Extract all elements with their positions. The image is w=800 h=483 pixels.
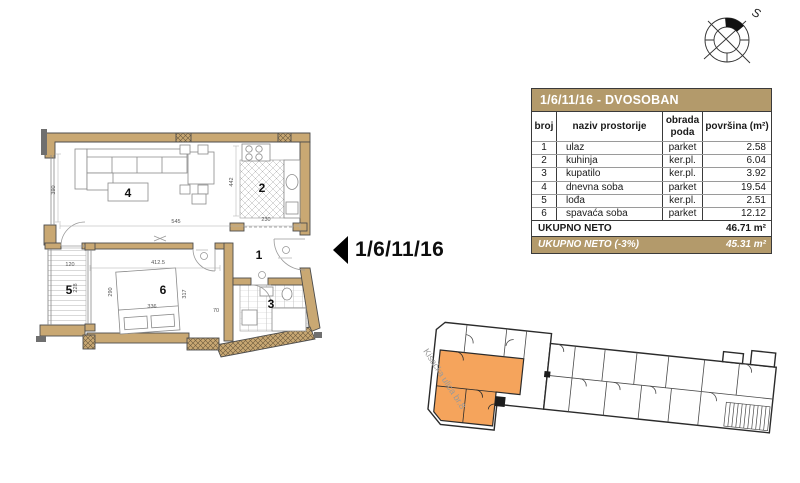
cell-naziv: dnevna soba <box>557 182 663 194</box>
table-row: 5 lođa ker.pl. 2.51 <box>532 194 771 207</box>
dining-table <box>188 152 214 184</box>
stairwell <box>724 402 770 430</box>
building-key-plan: Kisačka ulica br.8 <box>405 303 800 481</box>
dim-390: 390 <box>51 185 57 194</box>
room-number-5: 5 <box>66 283 73 297</box>
bedroom-top-wall <box>82 243 193 249</box>
table-title: 1/6/11/16 - DVOSOBAN <box>532 89 771 112</box>
total-value: 46.71 m² <box>726 221 766 236</box>
dim-290: 290 <box>108 287 114 296</box>
dim-317: 317 <box>182 289 188 298</box>
door-mark-circle <box>201 253 208 260</box>
floor-plan-sheet: 1 2 3 4 5 6 545 230 442 390 412.5 120 22… <box>0 0 800 483</box>
chair <box>180 185 190 194</box>
loggia-bedroom-jamb-bottom <box>85 324 95 331</box>
cell-povrsina: 3.92 <box>703 168 771 180</box>
cell-naziv: kupatilo <box>557 168 663 180</box>
top-wall-column <box>176 133 191 142</box>
col-header-obrada: obrada poda <box>663 112 703 141</box>
cell-naziv: spavaća soba <box>557 208 663 220</box>
dim-442: 442 <box>229 177 235 186</box>
cell-obrada: parket <box>663 208 703 220</box>
room-number-3: 3 <box>268 297 275 311</box>
chair <box>180 145 190 154</box>
left-arrow-icon <box>333 236 348 264</box>
loggia-bottom-wall <box>40 325 85 336</box>
cell-broj: 3 <box>532 168 557 180</box>
cell-broj: 2 <box>532 155 557 167</box>
right-wall-upper <box>300 142 310 235</box>
left-wall-mid <box>44 225 56 245</box>
cell-obrada: ker.pl. <box>663 168 703 180</box>
burner <box>256 146 262 152</box>
loggia-bedroom-jamb-top <box>85 243 95 250</box>
loggia-door-jamb <box>45 243 61 249</box>
table-row: 2 kuhinja ker.pl. 6.04 <box>532 154 771 167</box>
threshold-mark <box>544 371 551 378</box>
cell-broj: 1 <box>532 142 557 154</box>
pillow <box>151 314 175 328</box>
cell-naziv: kuhinja <box>557 155 663 167</box>
table-row: 3 kupatilo ker.pl. 3.92 <box>532 167 771 180</box>
dim-120: 120 <box>65 262 74 268</box>
burner <box>246 146 252 152</box>
bedroom-furniture <box>116 268 180 334</box>
kitchen-hall-wall-left <box>230 223 244 231</box>
cell-broj: 5 <box>532 195 557 207</box>
loggia-corner-wall <box>83 335 95 349</box>
burner <box>256 154 262 160</box>
dim-70: 70 <box>213 308 219 314</box>
sofa-armrest <box>75 149 87 189</box>
room-number-4: 4 <box>125 186 132 200</box>
toilet <box>282 288 292 300</box>
table-row: 1 ulaz parket 2.58 <box>532 141 771 154</box>
bottom-step-wall <box>187 338 219 350</box>
bedroom-bottom-wall <box>87 333 189 343</box>
cell-naziv: ulaz <box>557 142 663 154</box>
net-total-value: 45.31 m² <box>726 237 766 253</box>
cell-povrsina: 2.51 <box>703 195 771 207</box>
bedroom-hall-wall <box>224 243 233 341</box>
dim-336: 336 <box>147 304 156 310</box>
col-header-povrsina: površina (m²) <box>703 112 771 141</box>
cell-obrada: ker.pl. <box>663 155 703 167</box>
compass-north-label: S <box>750 5 763 21</box>
cell-naziv: lođa <box>557 195 663 207</box>
cell-obrada: ker.pl. <box>663 195 703 207</box>
kitchen-sink <box>286 175 298 190</box>
unit-callout: 1/6/11/16 <box>333 236 444 264</box>
chair <box>198 145 208 154</box>
chair <box>192 194 206 204</box>
table-header-row: broj naziv prostorije obrada poda površi… <box>532 112 771 141</box>
top-wall-column-2 <box>278 133 291 142</box>
cell-povrsina: 6.04 <box>703 155 771 167</box>
burner <box>246 154 252 160</box>
cell-obrada: parket <box>663 182 703 194</box>
room-number-2: 2 <box>259 181 266 195</box>
living-room-furniture <box>75 145 214 241</box>
counter-cabinet <box>286 202 298 214</box>
cell-broj: 6 <box>532 208 557 220</box>
washing-machine <box>242 310 257 325</box>
net-total-row: UKUPNO NETO (-3%) 45.31 m² <box>532 236 771 253</box>
cell-povrsina: 19.54 <box>703 182 771 194</box>
chair <box>198 185 208 194</box>
entrance-door-arc <box>274 239 305 270</box>
total-row: UKUPNO NETO 46.71 m² <box>532 220 771 236</box>
cell-broj: 4 <box>532 182 557 194</box>
pillow <box>124 316 148 330</box>
dim-545: 545 <box>171 219 180 225</box>
room-number-1: 1 <box>256 248 263 262</box>
door-mark-circle <box>283 247 290 254</box>
table-row: 4 dnevna soba parket 19.54 <box>532 181 771 194</box>
hall-bath-wall-left <box>233 278 251 285</box>
dim-412-5: 412.5 <box>151 260 165 266</box>
loggia-inner-glazing <box>88 250 91 324</box>
loggia-door-arc <box>61 222 85 246</box>
col-header-broj: broj <box>532 112 557 141</box>
dim-230: 230 <box>261 217 270 223</box>
balcony <box>723 352 744 364</box>
table-row: 6 spavaća soba parket 12.12 <box>532 207 771 220</box>
room-number-6: 6 <box>160 283 167 297</box>
door-mark-circle <box>259 272 266 279</box>
col-header-naziv: naziv prostorije <box>557 112 663 141</box>
bathtub <box>272 308 306 331</box>
unit-area-table: 1/6/11/16 - DVOSOBAN broj naziv prostori… <box>531 88 772 254</box>
balcony <box>750 351 775 367</box>
total-label: UKUPNO NETO <box>538 221 612 236</box>
apartment-floor-plan: 1 2 3 4 5 6 545 230 442 390 412.5 120 22… <box>28 98 340 360</box>
dim-228: 228 <box>73 283 79 292</box>
cell-povrsina: 12.12 <box>703 208 771 220</box>
elevator-core <box>495 396 506 407</box>
net-total-label: UKUPNO NETO (-3%) <box>538 237 639 253</box>
compass-rose: S <box>693 2 773 72</box>
cell-obrada: parket <box>663 142 703 154</box>
light-fixture-symbol <box>154 236 166 241</box>
cell-povrsina: 2.58 <box>703 142 771 154</box>
unit-callout-label: 1/6/11/16 <box>355 238 444 262</box>
